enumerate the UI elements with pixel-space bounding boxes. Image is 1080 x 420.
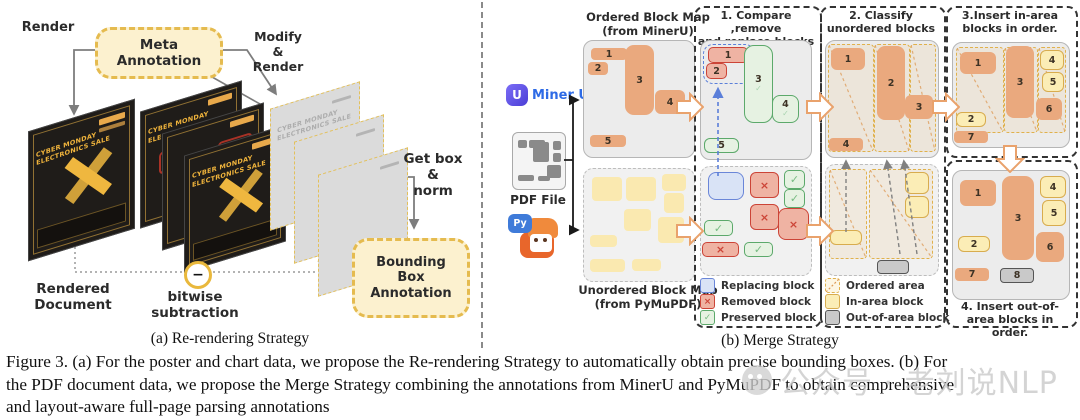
in-area-block	[830, 230, 862, 245]
step2-block-1: 1	[831, 48, 865, 70]
check-icon: ✓	[754, 243, 763, 256]
removed-block: ×	[702, 242, 739, 257]
bounding-box-annotation-box: Bounding Box Annotation	[352, 238, 470, 318]
flow-arrow-down-icon	[995, 145, 1025, 173]
step2-block-2: 2	[877, 46, 905, 120]
step1-block-4: 4✓	[772, 95, 799, 123]
legend-label: Replacing block	[721, 280, 814, 292]
unordered-block	[590, 259, 625, 272]
step1-block-2: 2	[706, 63, 727, 79]
block-number: 3	[755, 75, 762, 85]
unordered-block	[626, 177, 656, 201]
bitwise-subtraction-label: bitwise subtraction	[135, 290, 255, 322]
bitwise-line1: bitwise	[135, 290, 255, 306]
flow-arrow-icon	[676, 92, 704, 122]
ordered-area	[829, 169, 867, 259]
pdf-file-label: PDF File	[506, 193, 570, 207]
step3-block-1: 1	[960, 52, 996, 74]
getbox-line1: Get box	[398, 152, 468, 168]
ordered-area-swatch-icon	[825, 278, 840, 293]
legend-preserved-block: ✓ Preserved block	[700, 310, 816, 325]
modify-line3: Render	[248, 60, 308, 75]
x-icon: ×	[760, 179, 769, 192]
step3-title: 3.Insert in-area blocks in order.	[948, 10, 1072, 36]
step3-block-3: 3	[1006, 46, 1034, 118]
step1-title-line1: 1. Compare ,remove	[696, 10, 816, 36]
step2-title: 2. Classify unordered blocks	[822, 10, 940, 36]
block-number: 4	[782, 100, 789, 110]
step1-block-3: 3✓	[744, 45, 773, 123]
legend-label: Out-of-area block	[846, 312, 949, 324]
caption-line2: the PDF document data, we propose the Me…	[6, 374, 1078, 397]
step4-block-1: 1	[960, 180, 996, 206]
rendered-document-label: Rendered Document	[18, 282, 128, 314]
unordered-block	[632, 259, 661, 271]
check-icon: ✓	[755, 85, 762, 93]
panel-a: Render Meta Annotation Modify & Render C…	[0, 0, 482, 350]
modify-line1: Modify	[248, 30, 308, 45]
step3-block-2: 2	[956, 112, 986, 127]
panel-a-caption: (a) Re-rendering Strategy	[0, 330, 460, 348]
poster-chip	[356, 128, 375, 138]
bbox-line1: Bounding	[376, 255, 446, 271]
minus-glyph: −	[192, 267, 204, 283]
figure-caption: Figure 3. (a) For the poster and chart d…	[6, 351, 1078, 419]
step3-block-7: 7	[954, 131, 988, 143]
in-area-swatch-icon	[825, 294, 840, 309]
bbox-line2: Box	[397, 270, 424, 286]
ordered-block-2: 2	[588, 62, 608, 75]
step2-block-3: 3	[905, 95, 933, 119]
legend-out-of-area-block: Out-of-area block	[825, 310, 949, 325]
unordered-block	[662, 174, 686, 191]
step4-block-4: 4	[1040, 176, 1066, 198]
unordered-block	[664, 193, 684, 213]
meta-annotation-line1: Meta	[140, 37, 178, 53]
removed-block: ×	[778, 208, 809, 240]
step3-block-4: 4	[1040, 50, 1064, 70]
modify-line2: &	[248, 45, 308, 60]
legend-label: Preserved block	[721, 312, 816, 324]
flow-arrow-icon	[932, 92, 960, 122]
step4-block-3: 3	[1002, 176, 1034, 260]
ordered-block-3: 3	[625, 45, 654, 115]
preserved-block: ✓	[744, 242, 773, 257]
unordered-block	[624, 209, 651, 231]
legend-label: Ordered area	[846, 280, 925, 292]
preserved-block: ✓	[784, 189, 805, 208]
step3-title-line2: blocks in order.	[948, 23, 1072, 36]
bitwise-line2: subtraction	[135, 306, 255, 322]
legend-removed-block: × Removed block	[700, 294, 811, 309]
out-of-area-swatch-icon	[825, 310, 840, 325]
step4-block-5: 5	[1042, 200, 1066, 226]
meta-annotation-line2: Annotation	[117, 53, 201, 69]
step2-title-line2: unordered blocks	[822, 23, 940, 36]
preserved-block: ✓	[784, 170, 805, 189]
step1-block-5: 5	[704, 138, 739, 153]
legend-label: Removed block	[721, 296, 811, 308]
rendered-doc-line1: Rendered	[18, 282, 128, 298]
meta-annotation-box: Meta Annotation	[95, 27, 223, 79]
panel-b-caption: (b) Merge Strategy	[480, 332, 1080, 350]
x-icon: ×	[760, 211, 769, 224]
check-icon: ✓	[790, 173, 799, 186]
caption-line3: and layout-aware full-page parsing annot…	[6, 396, 1078, 419]
step4-block-7: 7	[955, 268, 989, 281]
out-of-area-block	[877, 260, 909, 274]
rendered-doc-line2: Document	[18, 298, 128, 314]
step4-block-8: 8	[1000, 268, 1034, 283]
flow-arrow-icon	[676, 216, 704, 246]
step2-block-4: 4	[829, 138, 863, 151]
unordered-block	[590, 235, 617, 247]
pymupdf-logo: Py	[506, 210, 562, 262]
x-icon: ×	[789, 218, 798, 231]
render-label: Render	[18, 20, 78, 35]
unordered-block	[592, 177, 622, 201]
legend-label: In-area block	[846, 296, 923, 308]
check-icon: ✓	[714, 222, 723, 235]
check-icon: ✓	[782, 110, 789, 118]
flow-arrow-icon	[806, 92, 834, 122]
preserved-block: ✓	[704, 220, 733, 236]
caption-line1: Figure 3. (a) For the poster and chart d…	[6, 351, 1078, 374]
x-icon: ×	[716, 243, 725, 256]
py-bubble: Py	[508, 214, 532, 233]
get-box-norm-label: Get box & norm	[398, 152, 468, 200]
poster-chip	[332, 95, 351, 105]
in-area-block	[905, 172, 929, 194]
bitwise-minus-icon: −	[184, 261, 212, 289]
poster-chip	[380, 161, 399, 171]
mineru-logo: U	[506, 84, 528, 106]
py-bubble-text: Py	[513, 218, 526, 229]
legend-replacing-block: Replacing block	[700, 278, 814, 293]
pymupdf-face	[530, 234, 552, 252]
getbox-line3: norm	[398, 184, 468, 200]
step4-block-2: 2	[958, 236, 990, 252]
ordered-block-5: 5	[590, 135, 626, 147]
ordered-block-1: 1	[591, 48, 627, 60]
preserved-swatch-icon: ✓	[700, 310, 715, 325]
step3-block-5: 5	[1042, 72, 1064, 92]
removed-block: ×	[750, 172, 779, 198]
removed-block: ×	[750, 204, 779, 230]
in-area-block	[905, 196, 929, 218]
replacing-block	[708, 172, 744, 200]
step4-block-6: 6	[1036, 232, 1064, 262]
replacing-swatch-icon	[700, 278, 715, 293]
getbox-line2: &	[398, 168, 468, 184]
legend-in-area-block: In-area block	[825, 294, 923, 309]
legend-ordered-area: Ordered area	[825, 278, 925, 293]
pdf-file-icon	[512, 132, 566, 190]
mineru-logo-letter: U	[512, 88, 522, 102]
figure-3: Render Meta Annotation Modify & Render C…	[0, 0, 1080, 420]
bbox-line3: Annotation	[370, 286, 451, 302]
removed-swatch-icon: ×	[700, 294, 715, 309]
step1-block-1: 1	[708, 47, 748, 63]
flow-arrow-icon	[806, 216, 834, 246]
check-icon: ✓	[790, 192, 799, 205]
step3-block-6: 6	[1036, 98, 1062, 120]
modify-render-label: Modify & Render	[248, 30, 308, 74]
